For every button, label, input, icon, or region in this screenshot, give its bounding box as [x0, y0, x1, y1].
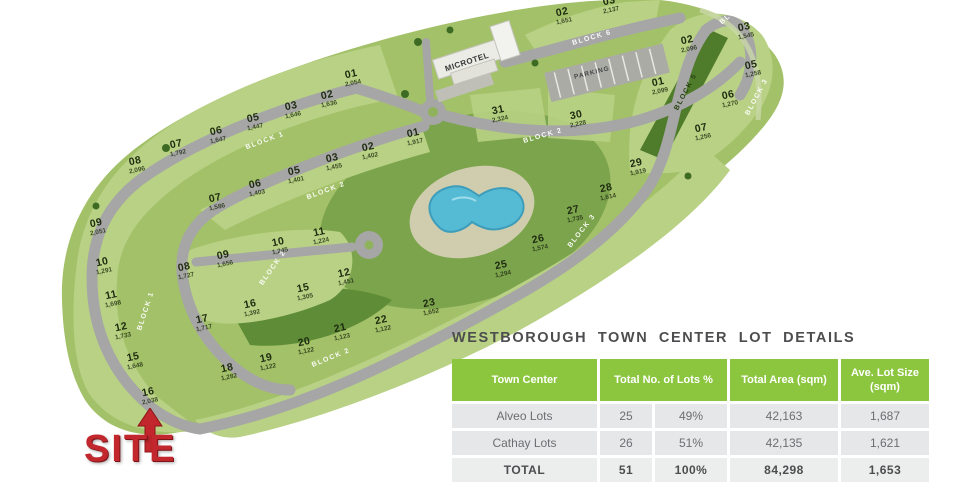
table-cell-avg: 1,621: [841, 431, 929, 455]
table-header: Ave. Lot Size (sqm): [841, 359, 929, 401]
table-cell-lots: 51: [600, 458, 652, 482]
table-cell-name: Cathay Lots: [452, 431, 597, 455]
table-body: Alveo Lots2549%42,1631,687Cathay Lots265…: [452, 404, 944, 482]
table-cell-area: 42,163: [730, 404, 838, 428]
table-header: Town Center: [452, 359, 597, 401]
site-label: SITE: [84, 428, 176, 471]
table-row: Cathay Lots2651%42,1351,621: [452, 431, 944, 455]
table-cell-area: 42,135: [730, 431, 838, 455]
table-cell-pct: 51%: [655, 431, 727, 455]
lot-details-panel: WESTBOROUGH TOWN CENTER LOT DETAILS Town…: [452, 330, 944, 482]
table-cell-area: 84,298: [730, 458, 838, 482]
table-cell-avg: 1,687: [841, 404, 929, 428]
table-cell-name: Alveo Lots: [452, 404, 597, 428]
table-cell-lots: 26: [600, 431, 652, 455]
site-development-plan: 012,054021,636031,646051,447061,647071,7…: [0, 0, 975, 501]
table-cell-name: TOTAL: [452, 458, 597, 482]
table-row: Alveo Lots2549%42,1631,687: [452, 404, 944, 428]
table-cell-pct: 100%: [655, 458, 727, 482]
cul-de-sac: [355, 231, 383, 259]
details-title: WESTBOROUGH TOWN CENTER LOT DETAILS: [452, 330, 944, 346]
table-cell-lots: 25: [600, 404, 652, 428]
table-row: TOTAL51100%84,2981,653: [452, 458, 944, 482]
table-header: Total Area (sqm): [730, 359, 838, 401]
table-header: Total No. of Lots %: [600, 359, 727, 401]
table-header-row: Town Center Total No. of Lots % Total Ar…: [452, 359, 944, 401]
table-cell-pct: 49%: [655, 404, 727, 428]
table-cell-avg: 1,653: [841, 458, 929, 482]
roundabout: [420, 99, 446, 125]
